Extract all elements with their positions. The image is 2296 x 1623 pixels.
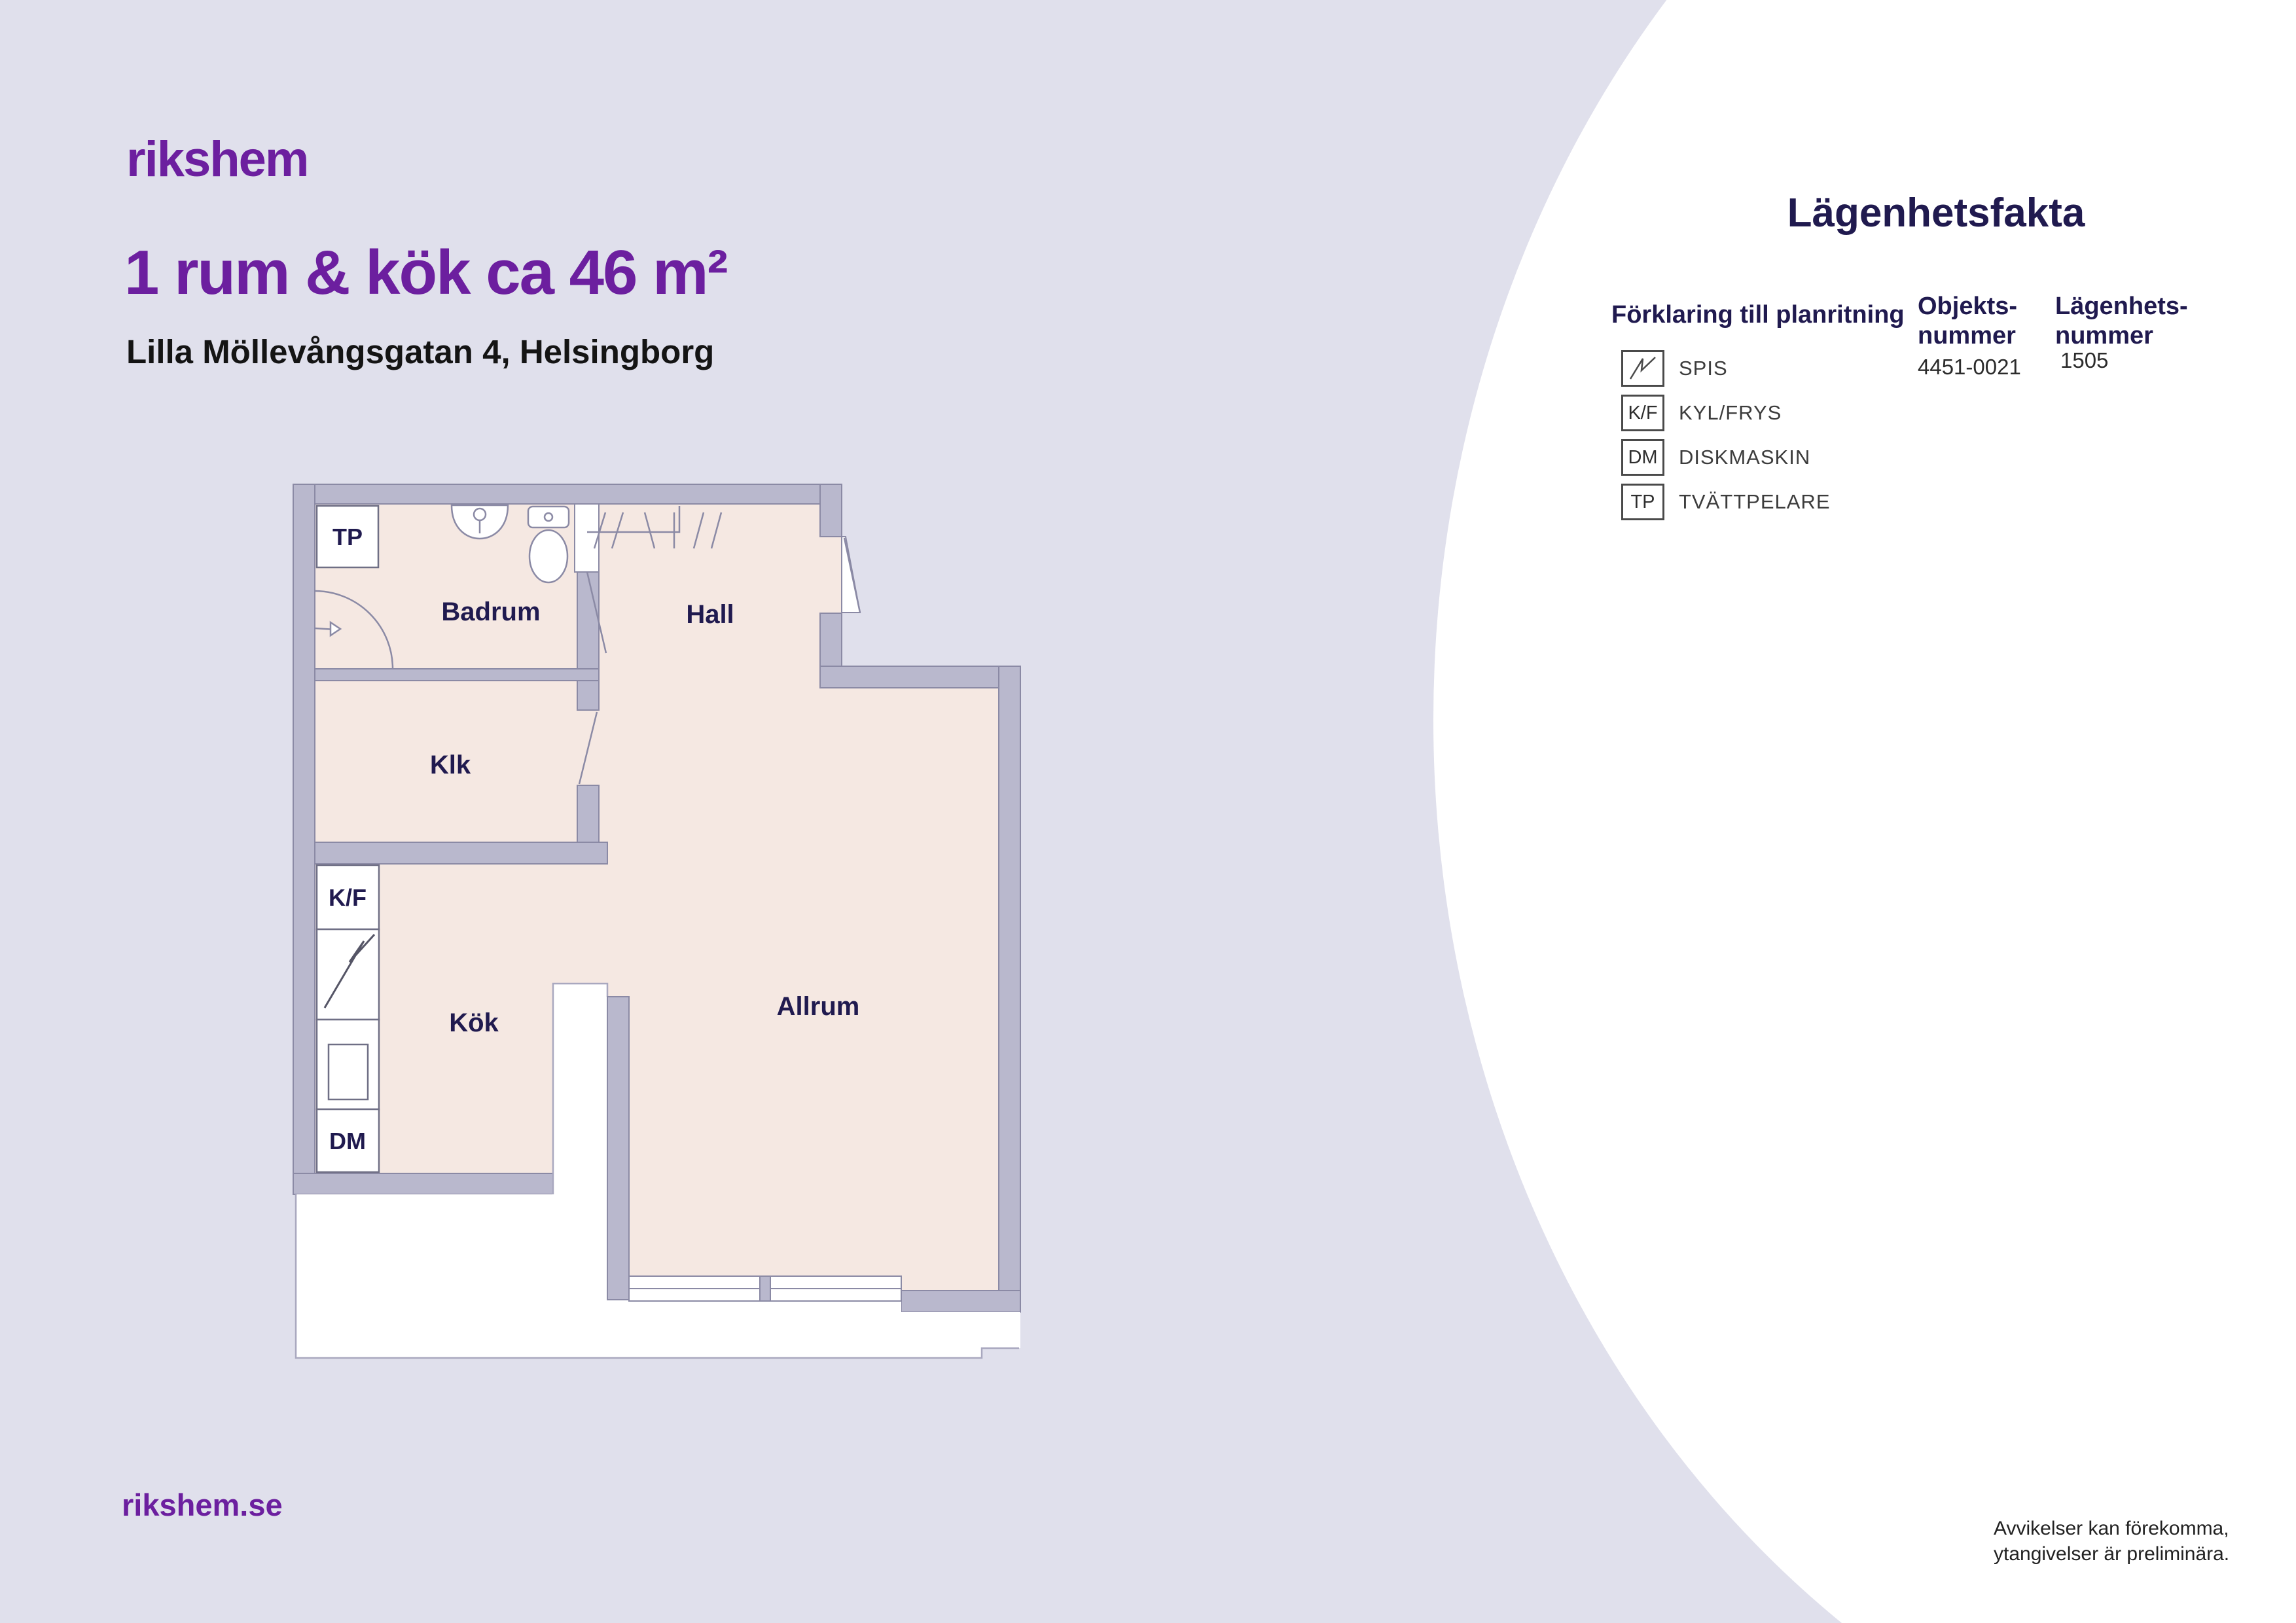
wall-top [293,484,842,504]
allrum-windows [629,1276,901,1301]
legend-label: SPIS [1679,357,1728,380]
label-kf: K/F [329,884,367,911]
legend-label: DISKMASKIN [1679,446,1810,469]
terrace-center [607,1300,901,1358]
label-hall: Hall [686,600,734,629]
label-klk: Klk [430,751,471,779]
window-mullion [760,1276,770,1301]
legend-row-spis: SPIS [1621,351,1831,386]
object-number-value: 4451-0021 [1918,355,2021,380]
apartment-number-value: 1505 [2060,348,2108,373]
terrace-right [901,1312,982,1358]
terrace-right-step [982,1312,1020,1348]
wall-klk-bottom [315,842,607,864]
toilet-button [545,513,552,521]
floor-plan: TP Badrum Hall Klk K/F Kök Allrum DM [281,471,1041,1374]
entrance-door-gap [820,537,842,613]
rikshem-logo: rikshem [126,131,308,188]
wall-bay-left-stub [607,997,629,1300]
facts-heading: Lägenhetsfakta [1707,190,2165,236]
label-dm: DM [329,1128,366,1154]
wall-badrum-bottom [315,669,599,681]
apartment-number-label: Lägenhets- nummer [2055,292,2188,351]
website-link: rikshem.se [122,1487,283,1523]
white-ellipse-background [1433,0,2296,1623]
tvattpelare-icon: TP [1621,484,1664,520]
spis-icon [1621,350,1664,387]
legend-label: KYL/FRYS [1679,401,1782,425]
wall-step-right [820,666,1020,688]
wall-bottom-right [901,1291,1020,1312]
brochure-page: rikshem 1 rum & kök ca 46 m² Lilla Mölle… [0,0,2296,1623]
wall-kok-bottom [293,1173,553,1194]
page-title: 1 rum & kök ca 46 m² [124,237,726,309]
label-allrum: Allrum [777,992,860,1021]
wall-allrum-right [999,666,1020,1312]
legend-row-diskmaskin: DM DISKMASKIN [1621,440,1831,475]
legend-label: TVÄTTPELARE [1679,490,1831,514]
wall-left [293,484,315,1194]
label-badrum: Badrum [441,597,540,626]
wall-klk-divider-top [577,681,599,710]
wall-klk-divider-bottom [577,785,599,842]
toilet-bowl [529,530,567,582]
legend-title: Förklaring till planritning [1611,301,1905,329]
wall-hall-right-upper [820,484,842,537]
badrum-door-recess [575,504,599,572]
kylfrys-icon: K/F [1621,395,1664,431]
label-kok: Kök [449,1008,499,1037]
legend-row-kylfrys: K/F KYL/FRYS [1621,395,1831,431]
address-subtitle: Lilla Möllevångsgatan 4, Helsingborg [126,332,714,371]
diskmaskin-icon: DM [1621,439,1664,476]
plan-legend: SPIS K/F KYL/FRYS DM DISKMASKIN TP TVÄTT… [1621,351,1831,520]
kitchen-sink [329,1044,368,1099]
legend-row-tvattpelare: TP TVÄTTPELARE [1621,484,1831,520]
washbasin-faucet [474,508,486,520]
kitchen-counter [553,984,607,1358]
object-number-label: Objekts- nummer [1918,292,2017,351]
disclaimer-text: Avvikelser kan förekomma, ytangivelser ä… [1994,1516,2229,1567]
terrace-left [296,1194,553,1358]
label-tp: TP [332,524,363,550]
wall-badrum-divider [577,572,599,669]
